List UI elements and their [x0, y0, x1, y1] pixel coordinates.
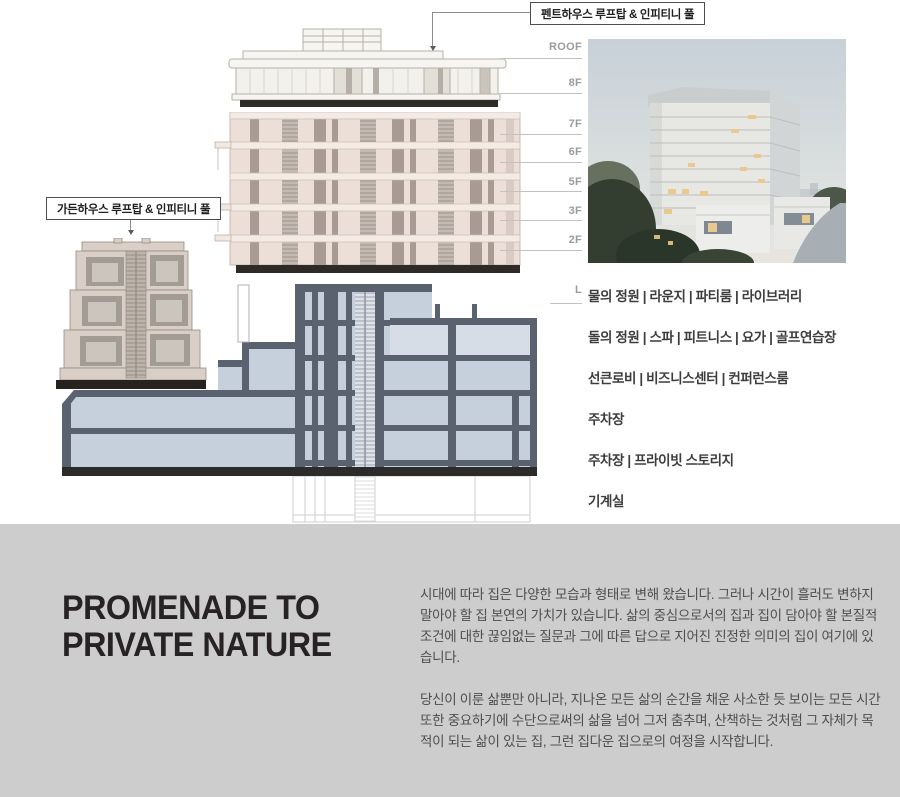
amenity-row-b1: 돌의 정원 | 스파 | 피트니스 | 요가 | 골프연습장 — [588, 331, 836, 345]
floor-line — [500, 134, 582, 135]
amenity-row-b4: 주차장 | 프라이빗 스토리지 — [588, 454, 836, 468]
amenity-row-machine: 기계실 — [588, 495, 836, 509]
chimney-outline — [238, 285, 249, 342]
garden-leader-arrow — [128, 230, 134, 235]
page-title-line2: PRIVATE NATURE — [62, 627, 332, 664]
floor-label-3f: 3F — [500, 204, 582, 218]
amenity-list: 물의 정원 | 라운지 | 파티룸 | 라이브러리 돌의 정원 | 스파 | 피… — [588, 290, 836, 536]
floor-line — [500, 220, 582, 221]
facade-balconies — [215, 142, 231, 241]
floor-line — [500, 58, 582, 59]
floor-label-8f: 8F — [500, 76, 582, 90]
facade-elevation-drawing — [214, 112, 522, 274]
facade-base-band — [236, 265, 520, 273]
floor-label-2f: 2F — [500, 233, 582, 247]
callout-garden-rooftop: 가든하우스 루프탑 & 인피티니 풀 — [46, 197, 221, 220]
amenity-row-lobby: 물의 정원 | 라운지 | 파티룸 | 라이브러리 — [588, 290, 836, 304]
callout-penthouse-rooftop: 펜트하우스 루프탑 & 인피티니 풀 — [530, 2, 705, 25]
penthouse-roof-structure — [229, 29, 506, 68]
floor-line — [500, 162, 582, 163]
floor-label-roof: ROOF — [500, 40, 582, 54]
building-photo — [588, 39, 846, 263]
floor-label-6f: 6F — [500, 145, 582, 159]
floor-line — [500, 93, 582, 94]
penthouse-base-band — [240, 100, 498, 107]
section-intro: PROMENADE TO PRIVATE NATURE 시대에 따라 집은 다양… — [0, 524, 900, 797]
page: 펜트하우스 루프탑 & 인피티니 풀 가든하우스 루프탑 & 인피티니 풀 RO… — [0, 0, 900, 797]
penthouse-elevation-drawing — [228, 28, 508, 108]
floor-line — [500, 250, 582, 251]
penthouse-leader-line-h — [432, 12, 530, 13]
intro-copy: 시대에 따라 집은 다양한 모습과 형태로 변해 왔습니다. 그러나 시간이 흘… — [420, 584, 884, 773]
floor-line — [500, 191, 582, 192]
section-diagram: 펜트하우스 루프탑 & 인피티니 풀 가든하우스 루프탑 & 인피티니 풀 RO… — [0, 0, 900, 524]
low-wing-section — [62, 390, 298, 467]
tower-section — [295, 284, 537, 474]
intro-paragraph-1: 시대에 따라 집은 다양한 모습과 형태로 변해 왔습니다. 그러나 시간이 흘… — [420, 584, 884, 668]
intro-paragraph-2: 당신이 이룬 삶뿐만 아니라, 지나온 모든 삶의 순간을 채운 사소한 듯 보… — [420, 689, 884, 752]
ground-line — [62, 467, 537, 476]
floor-line — [550, 303, 582, 304]
penthouse-deck-slab — [232, 94, 500, 100]
penthouse-leader-arrow — [430, 46, 436, 51]
building-cross-section-drawing — [60, 280, 550, 525]
basement-outline — [293, 476, 530, 522]
page-title: PROMENADE TO PRIVATE NATURE — [62, 590, 332, 664]
amenity-row-b3: 주차장 — [588, 413, 836, 427]
floor-label-7f: 7F — [500, 117, 582, 131]
penthouse-leader-line-v — [432, 12, 433, 47]
stepped-terrace-section — [218, 342, 298, 390]
amenity-row-b2: 선큰로비 | 비즈니스센터 | 컨퍼런스룸 — [588, 372, 836, 386]
page-title-line1: PROMENADE TO — [62, 590, 332, 627]
floor-label-lobby: L — [500, 283, 582, 297]
floor-label-5f: 5F — [500, 175, 582, 189]
